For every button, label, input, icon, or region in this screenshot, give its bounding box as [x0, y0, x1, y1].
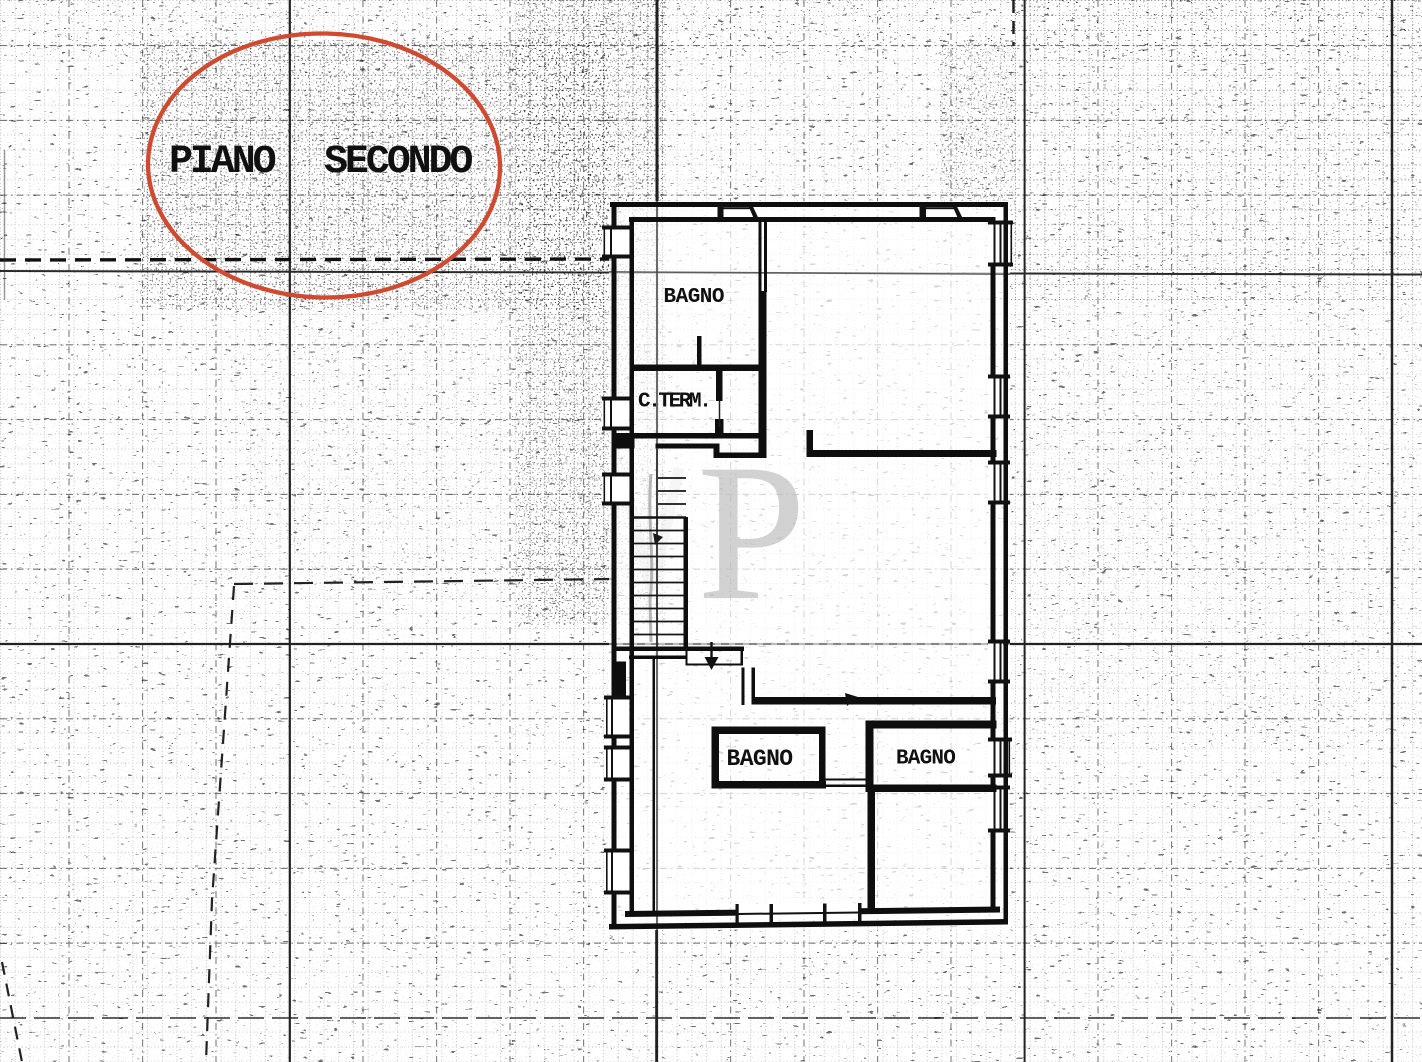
- svg-text:BAGNO: BAGNO: [727, 746, 793, 772]
- svg-text:C.TERM.: C.TERM.: [638, 391, 709, 414]
- svg-text:BAGNO: BAGNO: [664, 286, 725, 309]
- svg-text:PIANO: PIANO: [169, 140, 276, 185]
- svg-text:SECONDO: SECONDO: [324, 140, 472, 185]
- svg-text:BAGNO: BAGNO: [896, 748, 955, 771]
